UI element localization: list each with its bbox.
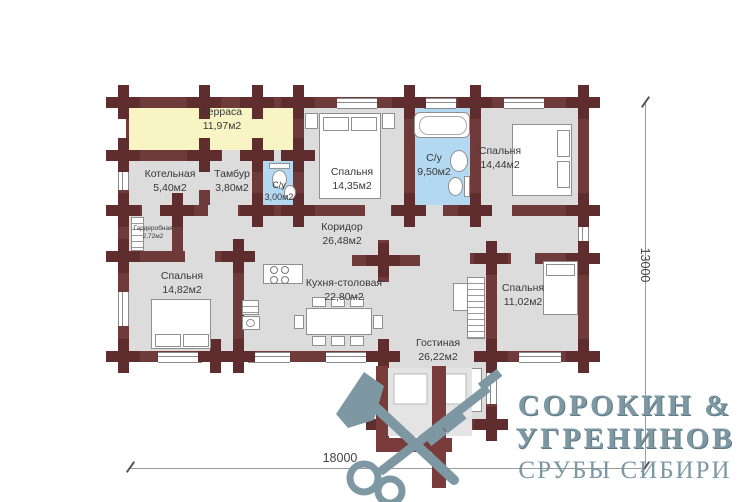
door-opening: [365, 205, 391, 216]
room-label-bedroom-4: Спальня11,02м2: [502, 282, 544, 309]
stove-burner-icon: [270, 266, 278, 274]
logo-line-1: СОРОКИН &: [500, 389, 750, 422]
toilet-tank-icon: [464, 176, 470, 197]
window: [326, 352, 366, 363]
stove-burner-icon: [281, 276, 289, 284]
room-label-boiler: Котельная5,40м2: [145, 168, 196, 195]
log-crossing: [221, 351, 255, 362]
room-label-corridor: Коридор26,48м2: [321, 221, 362, 248]
door-opening: [208, 205, 238, 216]
room-label-wc-small: С/у3,00м2: [265, 180, 294, 203]
door-opening: [185, 251, 215, 262]
window: [504, 98, 544, 109]
log-crossing: [106, 351, 140, 362]
stove-burner-icon: [270, 276, 278, 284]
pillow-icon: [546, 264, 575, 276]
log-crossing: [566, 351, 600, 362]
room-label-tambour: Тамбур3,80м2: [214, 168, 250, 195]
bathtub-inner: [419, 116, 467, 135]
dimension-label-height: 13000: [638, 241, 652, 289]
living-cabinet-icon: [467, 277, 485, 339]
nightstand-icon: [305, 113, 318, 129]
pillow-icon: [557, 161, 570, 188]
pillow-icon: [155, 334, 181, 347]
room-label-wardrobe: Гардеробная2,72м2: [133, 225, 172, 242]
pillow-icon: [557, 130, 570, 157]
log-crossing: [221, 251, 255, 262]
room-label-bathroom: С/у9,50м2: [417, 152, 451, 179]
log-crossing: [566, 97, 600, 108]
dimension-tick: [126, 461, 135, 473]
log-crossing: [106, 150, 140, 161]
room-label-kitchen: Кухня-столовая22,80м2: [306, 277, 382, 304]
log-crossing: [160, 205, 194, 216]
chair-icon: [331, 336, 345, 346]
toilet-tank-icon: [269, 163, 290, 169]
chair-icon: [373, 315, 383, 329]
log-crossing: [366, 351, 400, 362]
log-crossing: [106, 251, 140, 262]
sink-basin-icon: [246, 319, 255, 327]
log-crossing: [281, 205, 315, 216]
window: [337, 98, 377, 109]
pillow-icon: [323, 117, 349, 131]
pillow-icon: [351, 117, 377, 131]
log-crossing: [566, 205, 600, 216]
fridge-icon: [242, 300, 259, 315]
toilet-bowl-icon: [448, 177, 463, 196]
nightstand-icon: [382, 113, 395, 129]
log-crossing: [474, 253, 508, 264]
logo-line-2: УГРЕНИНОВ: [500, 422, 750, 455]
chair-icon: [350, 336, 364, 346]
log-crossing: [106, 97, 140, 108]
dining-table-icon: [306, 308, 372, 335]
sink-icon: [450, 150, 468, 172]
log-crossing: [474, 351, 508, 362]
log-crossing: [458, 97, 492, 108]
log-crossing: [240, 150, 274, 161]
stove-burner-icon: [281, 266, 289, 274]
floor-plan-page: Терраса11,97м2 Котельная5,40м2 Тамбур3,8…: [0, 0, 753, 502]
window: [424, 98, 456, 109]
window: [118, 292, 129, 326]
room-label-bedroom-1: Спальня14,35м2: [331, 166, 373, 193]
log-crossing: [281, 150, 315, 161]
log-crossing: [240, 205, 274, 216]
room-label-terrace: Терраса11,97м2: [202, 106, 242, 133]
log-crossing: [240, 97, 274, 108]
logo-line-3: СРУБЫ СИБИРИ: [500, 455, 750, 486]
log-crossing: [458, 205, 492, 216]
log-crossing: [187, 150, 221, 161]
log-crossing: [392, 97, 426, 108]
chair-icon: [312, 336, 326, 346]
log-crossing: [366, 255, 400, 266]
pillow-icon: [183, 334, 209, 347]
log-crossing: [106, 205, 140, 216]
window: [158, 352, 202, 363]
room-label-bedroom-3: Спальня14,82м2: [161, 270, 203, 297]
room-label-living: Гостиная26,22м2: [416, 337, 460, 364]
chair-icon: [294, 315, 304, 329]
logo-text: СОРОКИН & УГРЕНИНОВ СРУБЫ СИБИРИ: [500, 389, 750, 486]
room-label-bedroom-2: Спальня14,44м2: [479, 145, 521, 172]
door-opening: [511, 253, 535, 264]
window: [519, 352, 561, 363]
log-crossing: [392, 205, 426, 216]
log-crossing: [281, 97, 315, 108]
